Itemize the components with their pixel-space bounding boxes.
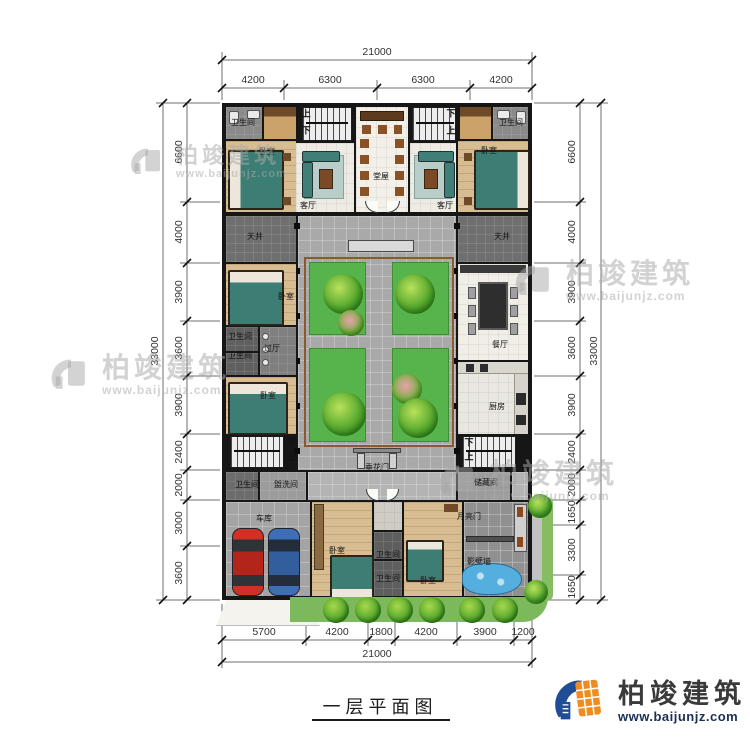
label-bathroom: 卫生间 (235, 481, 259, 489)
festoon-gate-column (389, 453, 397, 469)
column (294, 223, 300, 229)
moon-gate-post (517, 537, 523, 547)
label-bathroom: 卫生间 (228, 333, 252, 341)
label-light-well: 天井 (247, 233, 263, 241)
stairs-top-left-rail (306, 122, 348, 124)
title-underline (312, 719, 450, 721)
garden-bush (492, 597, 518, 623)
label-bathroom: 卫生间 (376, 575, 400, 583)
dim-bottom-seg: 1200 (511, 627, 534, 638)
company-logo: 柏竣建筑 www.baijunjz.com (552, 672, 746, 730)
company-logo-icon (552, 672, 610, 730)
label-bedroom: 卧室 (481, 147, 497, 155)
nightstand (464, 153, 472, 161)
label-bedroom: 卧室 (260, 392, 276, 400)
hall-chairs-left (360, 139, 369, 197)
room-light-well-right (458, 216, 528, 262)
label-washroom: 盥洗间 (274, 481, 298, 489)
dining-table (478, 282, 508, 330)
dim-left-overall: 33000 (150, 336, 161, 365)
label-stairs-down: 下 (446, 110, 455, 119)
label-stairs-up: 上 (464, 453, 473, 462)
hall-altar-table (360, 111, 404, 121)
label-garage: 车库 (256, 515, 272, 523)
sofa (302, 151, 340, 162)
dining-chair (510, 305, 518, 317)
label-hallway: 过厅 (264, 345, 280, 353)
dim-left-seg: 3900 (174, 280, 185, 303)
garden-bush (459, 597, 485, 623)
dim-left-seg: 3000 (174, 511, 185, 534)
label-stairs-down: 下 (464, 439, 473, 448)
dim-right-seg: 4000 (567, 220, 578, 243)
dim-right-seg: 3900 (567, 280, 578, 303)
nightstand (283, 153, 291, 161)
dining-chair (510, 323, 518, 335)
garden-bush (419, 597, 445, 623)
label-bathroom: 卫生间 (499, 119, 523, 127)
courtyard-screen-bench (348, 240, 414, 252)
nightstand (464, 197, 472, 205)
front-court (308, 472, 456, 500)
dim-right-seg: 2000 (567, 473, 578, 496)
label-bedroom: 卧室 (259, 148, 275, 156)
label-bedroom: 卧室 (420, 577, 436, 585)
light-fixture (262, 333, 269, 340)
dim-right-seg: 3300 (567, 538, 578, 561)
dim-left-seg: 2400 (174, 440, 185, 463)
dim-top-seg: 4200 (489, 75, 512, 86)
label-bathroom: 卫生间 (376, 551, 400, 559)
label-stairs-down: 下 (287, 439, 296, 448)
sideboard (460, 265, 526, 273)
label-storage: 储藏间 (474, 479, 498, 487)
courtyard-tree (398, 398, 438, 438)
moon-gate-post (517, 507, 523, 517)
hall-chairs-right (395, 139, 404, 197)
dim-bottom-seg: 1800 (369, 627, 392, 638)
garden-bush (323, 597, 349, 623)
label-moon-gate: 月亮门 (457, 513, 481, 521)
sofa (444, 162, 455, 198)
garden-tree (528, 494, 552, 518)
dim-right-seg: 1650 (567, 575, 578, 598)
label-festoon-gate: 垂花门 (365, 464, 389, 472)
dim-right-seg: 3600 (567, 336, 578, 359)
column (454, 223, 460, 229)
dim-left-seg: 6600 (174, 140, 185, 163)
label-stairs-down: 下 (301, 127, 310, 136)
dim-bottom-seg: 4200 (325, 627, 348, 638)
courtyard-tree (323, 274, 363, 314)
courtyard-flower-tree (338, 310, 364, 336)
dresser (444, 504, 458, 512)
label-bathroom: 卫生间 (228, 352, 252, 360)
drawing-title: 一层平面图 (323, 693, 438, 719)
label-light-well: 天井 (494, 233, 510, 241)
car-red (232, 528, 264, 596)
floor-plan-page: 21000 4200 6300 6300 4200 5700 4200 1800… (0, 0, 750, 750)
dim-right-seg: 3900 (567, 393, 578, 416)
dining-chair (468, 323, 476, 335)
kitchen-sink (516, 415, 526, 425)
label-stairs-up: 上 (446, 127, 455, 136)
coffee-table (319, 169, 333, 189)
dim-right-overall: 33000 (589, 336, 600, 365)
garden-bush (355, 597, 381, 623)
bed (228, 270, 284, 326)
passage-east (512, 472, 528, 500)
courtyard-tree (322, 392, 366, 436)
dim-right-seg: 2400 (567, 440, 578, 463)
sofa (418, 151, 454, 162)
water-feature (462, 563, 522, 595)
closet (314, 504, 324, 570)
dim-left-seg: 2000 (174, 473, 185, 496)
dining-chair (468, 287, 476, 299)
hall-chairs-top (362, 125, 402, 134)
label-bedroom: 卧室 (278, 293, 294, 301)
dim-bottom-overall: 21000 (362, 649, 391, 660)
car-blue (268, 528, 300, 596)
label-bedroom: 卧室 (329, 547, 345, 555)
courtyard-tree (395, 274, 435, 314)
label-stairs-up: 上 (301, 110, 310, 119)
dim-top-seg: 4200 (241, 75, 264, 86)
stairs-bottom-left-rail (234, 450, 280, 452)
label-kitchen: 厨房 (489, 403, 505, 411)
coffee-table (424, 169, 438, 189)
company-logo-brand: 柏竣建筑 (618, 679, 746, 710)
sofa (302, 162, 313, 198)
screen-wall (466, 536, 514, 542)
garden-bush (387, 597, 413, 623)
label-living-room: 客厅 (300, 202, 316, 210)
dim-bottom-seg: 5700 (252, 627, 275, 638)
garden-tree (524, 580, 548, 604)
column (454, 448, 460, 454)
bed (228, 382, 288, 435)
festoon-gate-column (357, 453, 365, 469)
kitchen-stove (516, 393, 526, 405)
bed (330, 555, 374, 599)
dim-right-seg: 6600 (567, 140, 578, 163)
dim-left-seg: 3900 (174, 393, 185, 416)
kitchen-appliance (466, 364, 474, 372)
label-main-hall: 堂屋 (373, 173, 389, 181)
label-living-room: 客厅 (437, 202, 453, 210)
dim-top-overall: 21000 (362, 47, 391, 58)
dim-left-seg: 4000 (174, 220, 185, 243)
company-logo-url: www.baijunjz.com (618, 710, 746, 723)
light-fixture (262, 359, 269, 366)
dim-bottom-seg: 4200 (414, 627, 437, 638)
nightstand (283, 197, 291, 205)
stairs-top-right-rail (416, 122, 454, 124)
label-bathroom: 卫生间 (231, 119, 255, 127)
bed (474, 150, 530, 210)
label-stairs-up: 上 (287, 453, 296, 462)
label-screen-wall: 影壁墙 (467, 558, 491, 566)
stairs-bottom-left (230, 436, 284, 468)
dining-chair (510, 287, 518, 299)
dim-left-seg: 3600 (174, 561, 185, 584)
wardrobe-top-right (460, 107, 491, 139)
kitchen-appliance (480, 364, 488, 372)
dim-left-seg: 3600 (174, 336, 185, 359)
label-dining-room: 餐厅 (492, 341, 508, 349)
wardrobe-top-left (264, 107, 296, 139)
dim-top-seg: 6300 (411, 75, 434, 86)
dim-top-seg: 6300 (318, 75, 341, 86)
closet-hall-south (374, 502, 402, 530)
dim-bottom-seg: 3900 (473, 627, 496, 638)
bed (228, 150, 284, 210)
dim-right-seg: 1650 (567, 500, 578, 523)
dining-chair (468, 305, 476, 317)
